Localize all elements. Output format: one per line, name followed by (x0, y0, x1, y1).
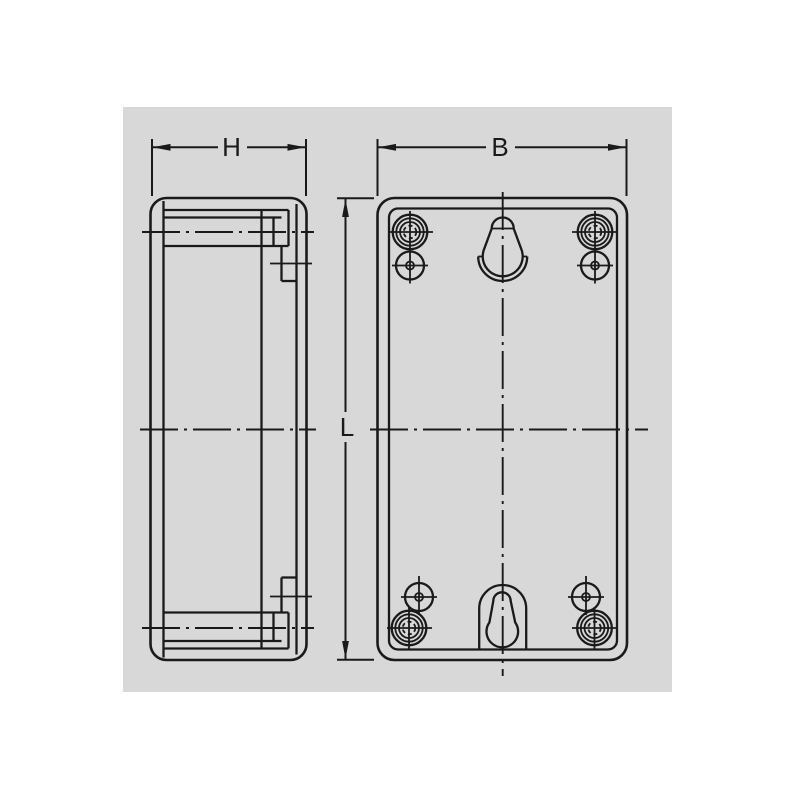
page: H B L (0, 0, 800, 800)
drawing-canvas (123, 107, 672, 692)
dimension-label-l: L (340, 412, 354, 442)
dimension-label-h: H (222, 132, 241, 162)
dimension-label-b: B (491, 132, 508, 162)
technical-drawing: H B L (0, 0, 800, 800)
